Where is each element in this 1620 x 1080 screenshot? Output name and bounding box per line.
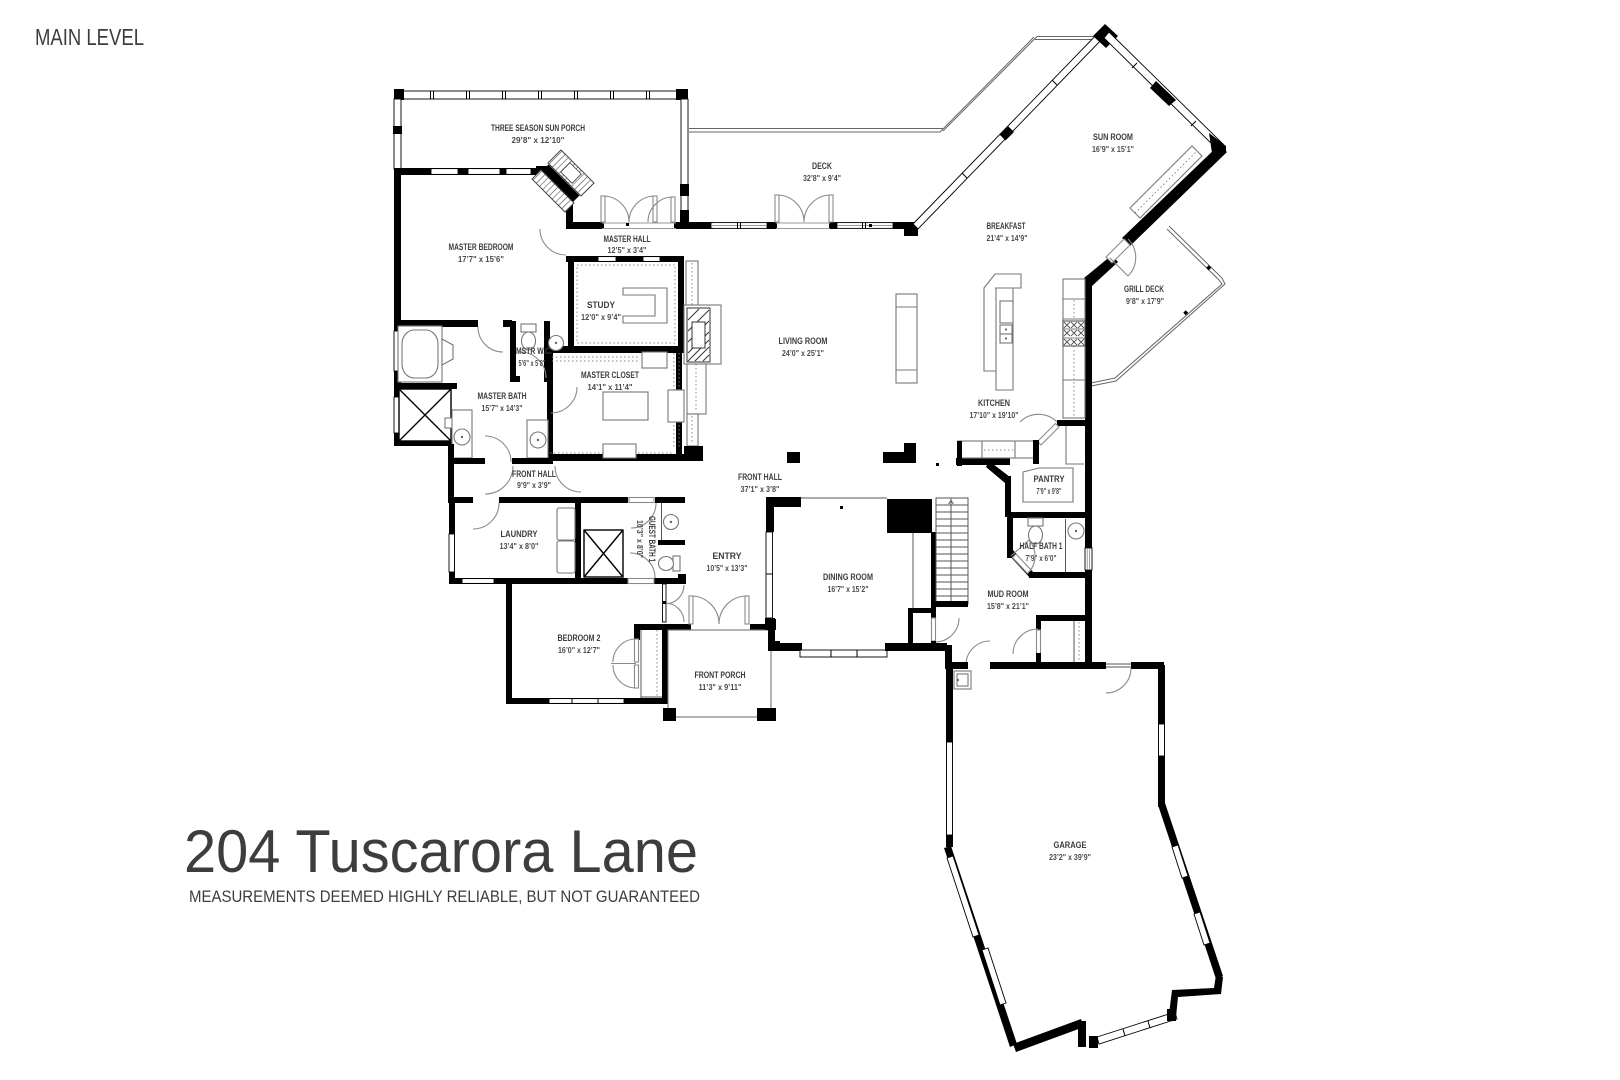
svg-text:9’8" x 17’9": 9’8" x 17’9" xyxy=(1126,296,1164,306)
svg-text:29’8" x 12’10": 29’8" x 12’10" xyxy=(512,135,565,145)
svg-text:FRONT HALL: FRONT HALL xyxy=(738,472,782,482)
svg-text:23’2" x 39’9": 23’2" x 39’9" xyxy=(1049,852,1091,862)
svg-text:BREAKFAST: BREAKFAST xyxy=(987,221,1026,231)
svg-text:16’7" x 15’2": 16’7" x 15’2" xyxy=(828,584,869,594)
svg-text:5’6" x 5’8": 5’6" x 5’8" xyxy=(519,358,546,368)
svg-text:FRONT HALL: FRONT HALL xyxy=(512,469,556,479)
svg-text:BEDROOM 2: BEDROOM 2 xyxy=(558,633,601,643)
svg-text:37’1" x 3’8": 37’1" x 3’8" xyxy=(741,484,780,494)
svg-text:17’7" x 15’6": 17’7" x 15’6" xyxy=(458,254,504,264)
svg-text:7’9" x 9’8": 7’9" x 9’8" xyxy=(1037,486,1062,496)
svg-text:STUDY: STUDY xyxy=(587,300,616,310)
svg-text:17’10" x 19’10": 17’10" x 19’10" xyxy=(970,410,1019,420)
svg-text:MAIN LEVEL: MAIN LEVEL xyxy=(35,24,144,50)
svg-text:10’3" x 8’0": 10’3" x 8’0" xyxy=(635,520,645,558)
svg-text:13’4" x 8’0": 13’4" x 8’0" xyxy=(500,541,539,551)
svg-text:10’5" x 13’3": 10’5" x 13’3" xyxy=(707,563,748,573)
svg-text:LAUNDRY: LAUNDRY xyxy=(501,529,539,539)
svg-text:MASTER BEDROOM: MASTER BEDROOM xyxy=(449,242,514,252)
svg-text:12’5" x 3’4": 12’5" x 3’4" xyxy=(608,245,647,255)
svg-text:15’8" x 21’1": 15’8" x 21’1" xyxy=(987,601,1029,611)
svg-text:9’9" x 3’9": 9’9" x 3’9" xyxy=(517,480,551,490)
svg-text:24’0" x 25’1": 24’0" x 25’1" xyxy=(782,348,824,358)
svg-text:15’7" x 14’3": 15’7" x 14’3" xyxy=(482,403,523,413)
svg-text:MASTER HALL: MASTER HALL xyxy=(604,234,651,244)
svg-text:MASTER BATH: MASTER BATH xyxy=(478,391,527,401)
svg-text:ENTRY: ENTRY xyxy=(713,551,743,561)
svg-text:16’9" x 15’1": 16’9" x 15’1" xyxy=(1092,144,1134,154)
svg-text:MEASUREMENTS DEEMED HIGHLY REL: MEASUREMENTS DEEMED HIGHLY RELIABLE, BUT… xyxy=(189,887,700,906)
svg-text:16’0" x 12’7": 16’0" x 12’7" xyxy=(558,645,600,655)
svg-text:THREE SEASON SUN PORCH: THREE SEASON SUN PORCH xyxy=(491,123,585,133)
svg-text:7’9" x 6’0": 7’9" x 6’0" xyxy=(1026,553,1057,563)
svg-text:LIVING ROOM: LIVING ROOM xyxy=(779,336,828,346)
svg-text:DECK: DECK xyxy=(812,161,832,171)
svg-text:KITCHEN: KITCHEN xyxy=(978,398,1010,408)
svg-text:12’0" x 9’4": 12’0" x 9’4" xyxy=(581,312,621,322)
svg-text:21’4" x 14’9": 21’4" x 14’9" xyxy=(987,233,1028,243)
svg-text:32’8" x 9’4": 32’8" x 9’4" xyxy=(803,173,841,183)
svg-text:FRONT PORCH: FRONT PORCH xyxy=(695,670,746,680)
svg-text:GUEST BATH 1: GUEST BATH 1 xyxy=(647,516,657,562)
svg-text:14’1" x 11’4": 14’1" x 11’4" xyxy=(588,382,633,392)
svg-text:GARAGE: GARAGE xyxy=(1054,840,1087,850)
svg-text:MSTR W.C.: MSTR W.C. xyxy=(516,346,552,356)
svg-text:MASTER CLOSET: MASTER CLOSET xyxy=(581,370,639,380)
svg-text:PANTRY: PANTRY xyxy=(1034,474,1066,484)
svg-text:11’3" x 9’11": 11’3" x 9’11" xyxy=(699,682,742,692)
svg-text:SUN ROOM: SUN ROOM xyxy=(1093,132,1133,142)
svg-text:204 Tuscarora Lane: 204 Tuscarora Lane xyxy=(184,818,698,885)
svg-text:MUD ROOM: MUD ROOM xyxy=(988,589,1029,599)
svg-text:GRILL DECK: GRILL DECK xyxy=(1124,284,1164,294)
svg-text:DINING ROOM: DINING ROOM xyxy=(823,572,873,582)
svg-text:HALF BATH 1: HALF BATH 1 xyxy=(1020,541,1063,551)
